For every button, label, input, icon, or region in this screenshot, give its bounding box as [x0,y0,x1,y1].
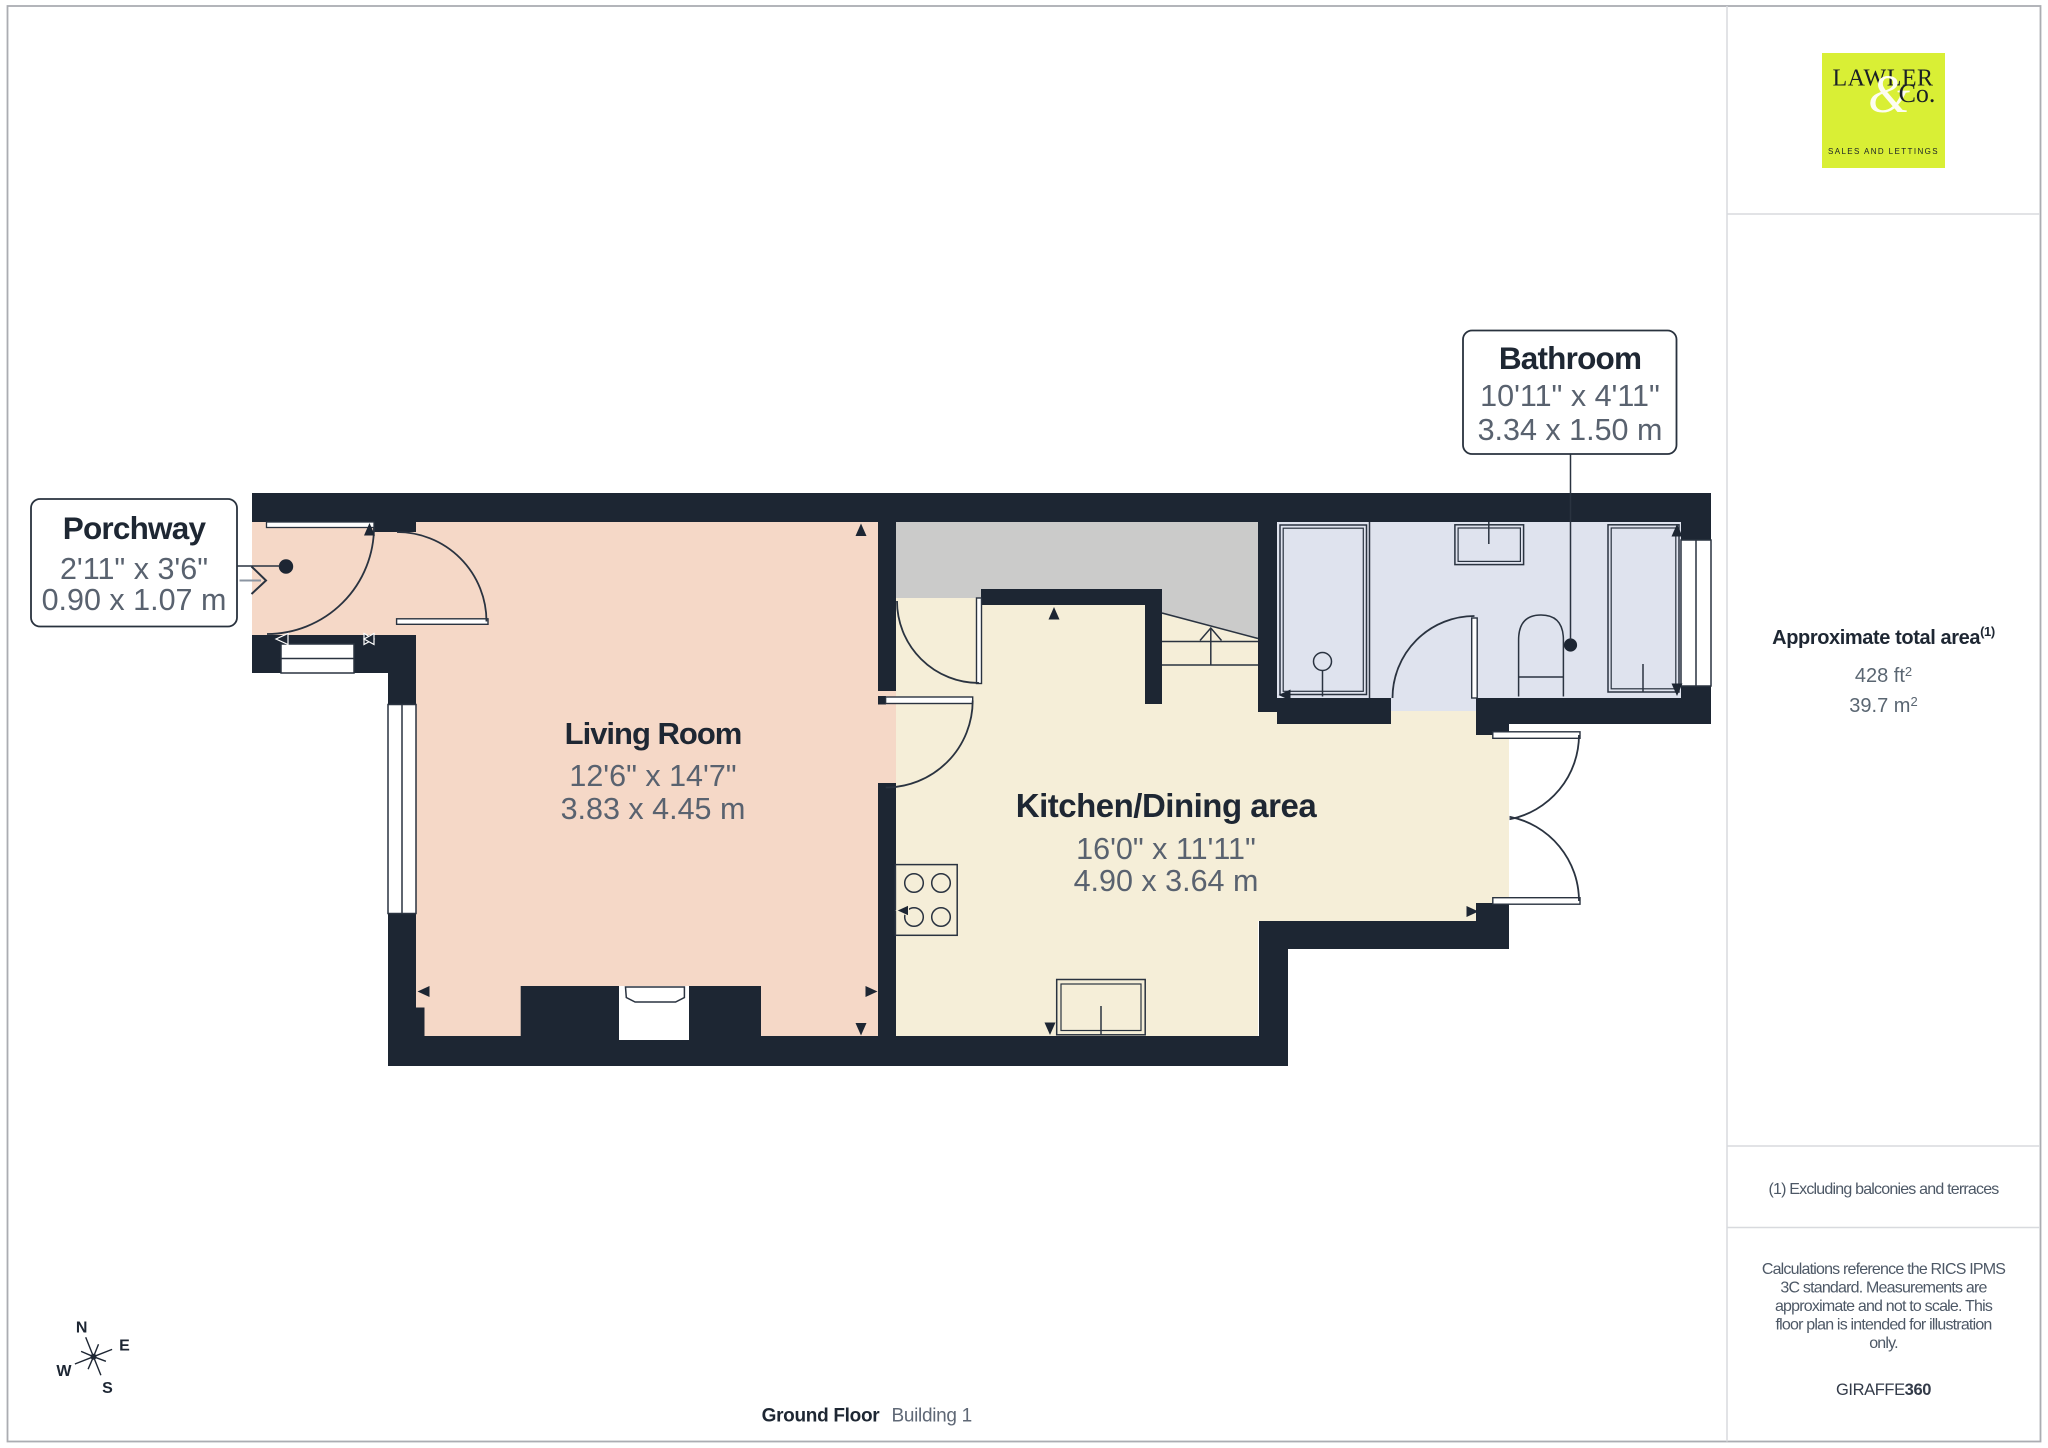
svg-text:S: S [102,1380,113,1397]
svg-text:3C standard. Measurements are: 3C standard. Measurements are [1780,1280,1987,1297]
svg-text:39.7 m2: 39.7 m2 [1849,694,1917,717]
svg-text:E: E [119,1338,130,1355]
svg-text:Ground Floor: Ground Floor [762,1406,881,1427]
svg-text:16'0" x 11'11": 16'0" x 11'11" [1076,832,1256,866]
svg-text:4.90 x 3.64 m: 4.90 x 3.64 m [1074,864,1259,898]
svg-text:W: W [56,1363,72,1380]
svg-text:approximate and not to scale.: approximate and not to scale. This [1775,1298,1993,1315]
svg-text:N: N [76,1320,88,1337]
svg-text:SALES AND LETTINGS: SALES AND LETTINGS [1828,147,1939,156]
svg-text:Kitchen/Dining area: Kitchen/Dining area [1016,787,1318,824]
svg-text:10'11" x 4'11": 10'11" x 4'11" [1480,379,1660,413]
svg-text:Bathroom: Bathroom [1499,340,1641,376]
svg-text:2'11" x 3'6": 2'11" x 3'6" [60,552,208,586]
svg-text:Co.: Co. [1899,79,1936,108]
svg-text:floor plan is intended for ill: floor plan is intended for illustration [1775,1317,1991,1334]
svg-text:428 ft2: 428 ft2 [1855,664,1912,687]
svg-text:Living Room: Living Room [565,716,742,751]
svg-text:0.90 x 1.07 m: 0.90 x 1.07 m [42,583,227,617]
svg-text:Building 1: Building 1 [892,1406,972,1427]
svg-text:(1) Excluding balconies and te: (1) Excluding balconies and terraces [1768,1181,1999,1198]
svg-text:Approximate total area(1): Approximate total area(1) [1772,624,1995,649]
svg-text:3.83 x 4.45 m: 3.83 x 4.45 m [561,792,746,826]
svg-text:Calculations reference the RIC: Calculations reference the RICS IPMS [1762,1261,2005,1278]
svg-text:GIRAFFE360: GIRAFFE360 [1836,1381,1931,1399]
svg-text:12'6" x 14'7": 12'6" x 14'7" [569,759,736,793]
svg-text:Porchway: Porchway [63,510,207,546]
svg-text:only.: only. [1869,1335,1898,1352]
svg-text:3.34 x 1.50 m: 3.34 x 1.50 m [1478,413,1663,447]
